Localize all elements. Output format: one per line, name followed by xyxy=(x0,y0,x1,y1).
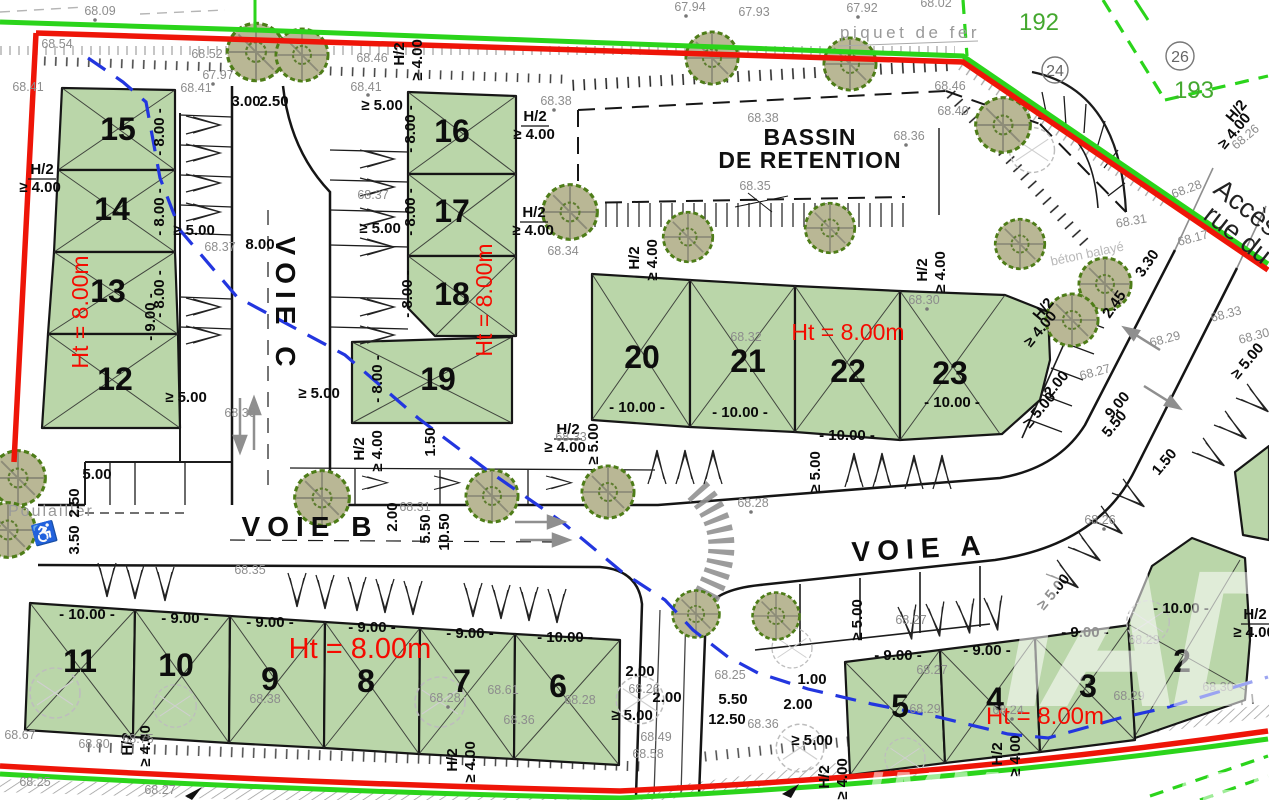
elevation-label: 68.27 xyxy=(144,783,175,797)
voie-c-label: VOIE C xyxy=(270,237,301,374)
elevation-label: 68.37 xyxy=(357,188,388,202)
elevation-label: 68.27 xyxy=(895,613,926,627)
tree-icon xyxy=(686,32,738,84)
dim-label: - 9.00 - xyxy=(142,293,159,341)
tree-icon xyxy=(976,98,1031,153)
dim-label: 12.50 xyxy=(708,711,746,728)
elevation-label: 68.41 xyxy=(180,81,211,95)
dim-label: - 10.00 - xyxy=(59,606,115,623)
dim-label: ≥ 5.00 xyxy=(849,599,866,641)
voie-b-label: VOIE B xyxy=(242,511,379,542)
dim-label: - 10.00 - xyxy=(537,629,593,646)
dim-label: - 8.00 - xyxy=(369,355,386,403)
tree-icon xyxy=(582,466,634,518)
elevation-label: 68.02 xyxy=(920,0,951,10)
setback-4: ≥ 4.00 xyxy=(644,239,661,281)
setback-4: ≥ 4.00 xyxy=(932,251,949,293)
plot-number: 14 xyxy=(94,191,130,227)
plan-drawing: ♿ VOIE C VOIE B VOIE A BASSIN DE RETENTI… xyxy=(0,0,1269,800)
elevation-label: 68.28 xyxy=(429,691,460,705)
dim-label: ≥ 5.00 xyxy=(165,389,207,406)
dim-label: - 10.00 - xyxy=(819,427,875,444)
elevation-label: 68.36 xyxy=(747,717,778,731)
elevation-label: 68.41 xyxy=(12,80,43,94)
elevation-label: 68.40 xyxy=(937,104,968,118)
height-limit-label: Ht = 8.00m xyxy=(67,255,93,368)
elevation-label: 68.34 xyxy=(547,244,578,258)
dim-label: 1.50 xyxy=(422,427,439,456)
dim-label: - 10.00 - xyxy=(924,394,980,411)
plot-number: 18 xyxy=(434,276,470,312)
dim-label: 2.50 xyxy=(66,488,83,517)
dim-label: ≥ 5.00 xyxy=(1228,340,1268,383)
plot-number: 5 xyxy=(891,688,909,724)
elevation-label: 68.52 xyxy=(191,47,222,61)
elevation-label: 67.93 xyxy=(738,5,769,19)
setback-h2: H/2 xyxy=(816,765,833,788)
tree-icon xyxy=(466,470,518,522)
dim-label: ≥ 5.00 xyxy=(359,220,401,237)
dim-label: 3.50 xyxy=(66,525,83,554)
elevation-label: 68.28 xyxy=(737,496,768,510)
dim-label: - 8.00 - xyxy=(402,188,419,236)
plot-number: 20 xyxy=(624,339,660,375)
elevation-label: 68.30 xyxy=(908,293,939,307)
tree-icon xyxy=(995,219,1044,268)
parcel-24-label: 24 xyxy=(1046,63,1064,80)
dim-label: ≥ 5.00 xyxy=(298,385,340,402)
plot-shape xyxy=(1235,446,1269,540)
elevation-label: 68.33 xyxy=(1209,303,1243,325)
elevation-label: 68.32 xyxy=(730,330,761,344)
elevation-label: 68.41 xyxy=(350,80,381,94)
dim-label: ≥ 5.00 xyxy=(791,732,833,749)
plot-number: 21 xyxy=(730,343,766,379)
elevation-label: 68.33 xyxy=(555,430,586,444)
setback-4: ≥ 4.00 xyxy=(369,430,386,472)
dim-label: - 8.00 - xyxy=(399,270,416,318)
elevation-label: 68.29 xyxy=(909,702,940,716)
plot-number: 19 xyxy=(420,361,456,397)
dim-label: ≥ 5.00 xyxy=(807,451,824,493)
plot-number: 23 xyxy=(932,355,968,391)
parcel-193-label: 193 xyxy=(1174,77,1214,104)
elevation-label: 68.38 xyxy=(540,94,571,108)
setback-4: ≥ 4.00 xyxy=(513,126,555,143)
dim-label: ≥ 5.00 xyxy=(361,97,403,114)
elevation-label: 68.28 xyxy=(564,693,595,707)
elevation-label: 68.36 xyxy=(503,713,534,727)
dim-label: - 9.00 - xyxy=(446,625,494,642)
watermark-label: IMMOBILIER xyxy=(865,760,1269,800)
elevation-label: 67.97 xyxy=(202,68,233,82)
dim-label: ≥ 5.00 xyxy=(173,222,215,239)
tree-icon xyxy=(276,29,328,81)
elevation-label: 68.38 xyxy=(249,692,280,706)
dim-label: - 9.00 - xyxy=(246,614,294,631)
height-limit-label: Ht = 8.00m xyxy=(289,633,432,665)
dim-label: - 8.00 - xyxy=(151,188,168,236)
dim-label: 8.00 xyxy=(245,236,274,253)
plot-number: 10 xyxy=(158,647,194,683)
setback-h2: H/2 xyxy=(391,42,408,65)
setback-h2: H/2 xyxy=(522,204,545,221)
dim-label: 2.00 xyxy=(783,696,812,713)
piquet-de-fer-label: piquet de fer xyxy=(840,23,980,42)
dim-label: - 10.00 - xyxy=(712,404,768,421)
elevation-label: 68.58 xyxy=(632,747,663,761)
dim-label: 10.50 xyxy=(436,513,453,551)
plot-number: 17 xyxy=(434,193,470,229)
elevation-label: 68.26 xyxy=(1084,513,1115,527)
plot-number: 11 xyxy=(63,643,97,679)
dim-label: 5.50 xyxy=(417,514,434,543)
elevation-label: 68.35 xyxy=(739,179,770,193)
dim-label: 3.30 xyxy=(1132,247,1163,281)
setback-h2: H/2 xyxy=(444,748,461,771)
setback-h2: H/2 xyxy=(30,161,53,178)
setback-h2: H/2 xyxy=(626,246,643,269)
tree-icon xyxy=(753,593,800,640)
plot-number: 22 xyxy=(830,353,866,389)
elevation-label: 68.46 xyxy=(934,79,965,93)
dim-label: 1.50 xyxy=(1149,445,1181,478)
elevation-label: 67.92 xyxy=(846,1,877,15)
setback-4: ≥ 4.00 xyxy=(834,758,851,800)
elevation-label: 68.31 xyxy=(1115,211,1148,230)
elevation-label: 68.27 xyxy=(916,663,947,677)
dim-label: ≥ 5.00 xyxy=(585,423,602,465)
elevation-label: 67.94 xyxy=(674,0,705,14)
plot-number: 15 xyxy=(100,111,136,147)
setback-4: ≥ 4.00 xyxy=(462,741,479,783)
elevation-label: 68.54 xyxy=(41,37,72,51)
dim-label: 2.50 xyxy=(259,93,288,110)
elevation-label: 68.26 xyxy=(628,682,659,696)
parcel-192-label: 192 xyxy=(1019,9,1059,36)
height-limit-label: Ht = 8.00m xyxy=(791,319,904,345)
tree-icon xyxy=(0,451,45,506)
elevation-label: 68.29 xyxy=(1148,328,1182,350)
dim-label: 5.50 xyxy=(718,691,747,708)
elevation-label: 68.75 xyxy=(122,732,153,746)
dim-label: 3.00 xyxy=(231,93,260,110)
elevation-label: 68.80 xyxy=(78,737,109,751)
dim-label: 9.00 xyxy=(1102,388,1134,421)
tree-icon xyxy=(805,203,854,252)
setback-h2: H/2 xyxy=(351,437,368,460)
dim-label: - 9.00 - xyxy=(348,619,396,636)
elevation-label: 68.27 xyxy=(1078,361,1112,383)
dim-label: - 9.00 - xyxy=(874,647,922,664)
site-plan: ♿ VOIE C VOIE B VOIE A BASSIN DE RETENTI… xyxy=(0,0,1269,800)
dim-label: - 10.00 - xyxy=(609,399,665,416)
elevation-label: 68.61 xyxy=(487,683,518,697)
tree-icon xyxy=(663,212,712,261)
elevation-label: 68.09 xyxy=(84,4,115,18)
elevation-label: 68.46 xyxy=(356,51,387,65)
plot-number: 8 xyxy=(357,663,375,699)
parcel-26-label: 26 xyxy=(1171,49,1189,66)
dim-label: - 9.00 - xyxy=(161,610,209,627)
elevation-label: 68.37 xyxy=(204,240,235,254)
watermark-monogram: IAD xyxy=(1003,530,1269,748)
setback-h2: H/2 xyxy=(523,108,546,125)
dim-label: 2.00 xyxy=(625,663,654,680)
bassin-label-2: DE RETENTION xyxy=(718,147,901,173)
elevation-label: 68.67 xyxy=(4,728,35,742)
elevation-label: 68.25 xyxy=(19,775,50,789)
elevation-label: 68.35 xyxy=(234,563,265,577)
dim-label: ≥ 5.00 xyxy=(611,707,653,724)
elevation-label: 68.49 xyxy=(640,730,671,744)
elevation-label: 68.31 xyxy=(399,500,430,514)
plot-number: 16 xyxy=(434,113,470,149)
setback-4: ≥ 4.00 xyxy=(409,39,426,81)
plot-number: 13 xyxy=(90,273,126,309)
dim-label: - 8.00 - xyxy=(402,105,419,153)
elevation-label: 68.25 xyxy=(714,668,745,682)
height-limit-label: Ht = 8.00m xyxy=(471,243,497,356)
dim-label: 5.00 xyxy=(82,466,111,483)
crosswalk xyxy=(697,490,721,600)
dim-label: - 8.00 - xyxy=(151,108,168,156)
elevation-label: 68.36 xyxy=(893,129,924,143)
elevation-label: 68.36 xyxy=(224,406,255,420)
setback-4: ≥ 4.00 xyxy=(19,179,61,196)
setback-4: ≥ 4.00 xyxy=(512,222,554,239)
plot-number: 12 xyxy=(97,361,133,397)
elevation-label: 68.17 xyxy=(1176,227,1210,249)
setback-h2: H/2 xyxy=(914,258,931,281)
elevation-label: 68.38 xyxy=(747,111,778,125)
dim-label: 1.00 xyxy=(797,671,826,688)
